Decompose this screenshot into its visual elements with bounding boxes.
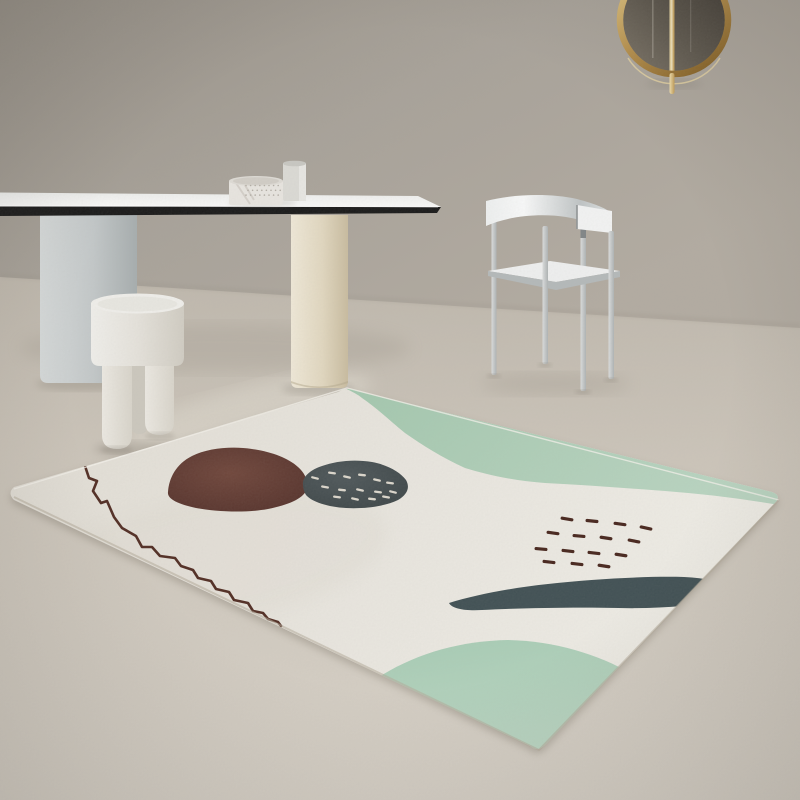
interior-photo [0, 0, 800, 800]
scene-canvas [0, 0, 800, 800]
photo-vignette [0, 0, 800, 800]
